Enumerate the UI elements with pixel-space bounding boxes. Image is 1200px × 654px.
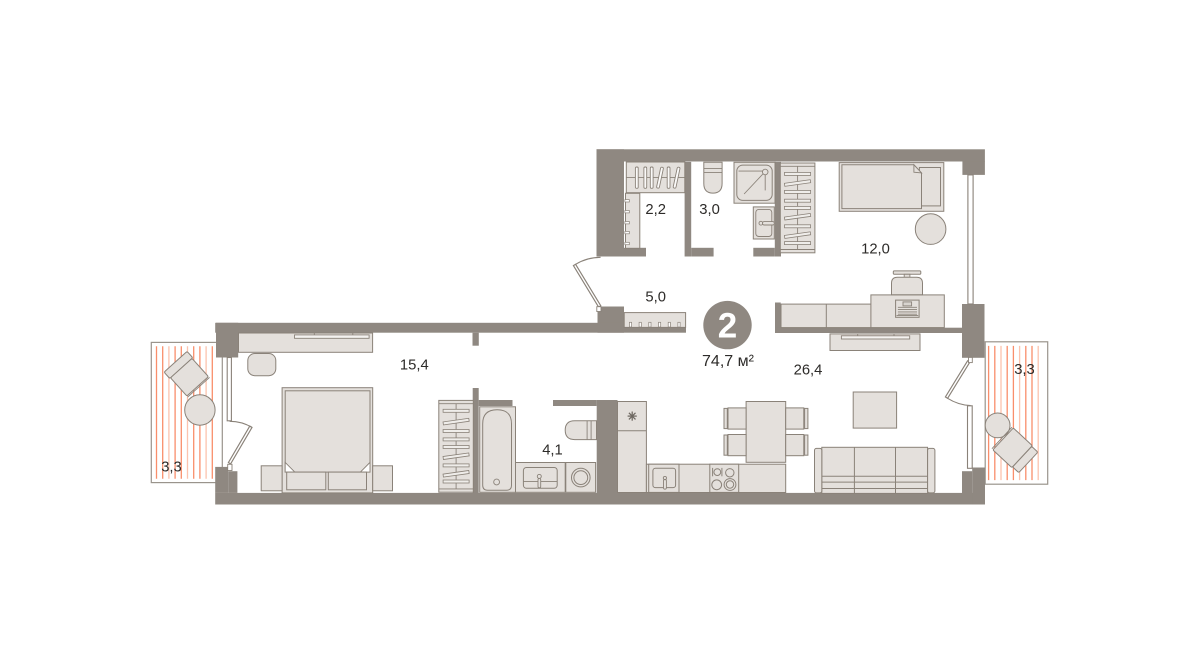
svg-text:3,3: 3,3 — [161, 459, 182, 475]
svg-text:12,0: 12,0 — [861, 241, 890, 257]
svg-text:74,7 м²: 74,7 м² — [702, 353, 755, 370]
svg-text:2: 2 — [718, 306, 737, 345]
svg-text:3,0: 3,0 — [699, 202, 720, 218]
svg-text:3,3: 3,3 — [1014, 362, 1035, 378]
svg-text:4,1: 4,1 — [542, 443, 563, 459]
svg-text:15,4: 15,4 — [400, 357, 429, 373]
svg-text:2,2: 2,2 — [645, 202, 666, 218]
svg-text:26,4: 26,4 — [794, 363, 823, 379]
svg-text:5,0: 5,0 — [645, 290, 666, 306]
